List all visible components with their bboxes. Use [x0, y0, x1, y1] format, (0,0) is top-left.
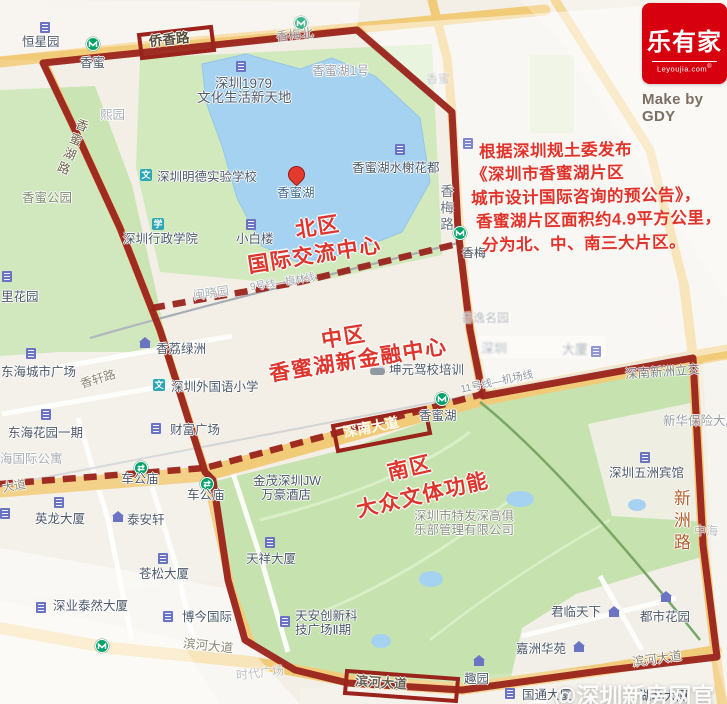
credit-text: Make by GDY [642, 91, 727, 125]
watermark: @深圳新房网官微 [527, 677, 727, 704]
registered-mark: ® [707, 64, 712, 70]
leyoujia-logo: 乐有家 Leyoujia.com® [642, 3, 727, 84]
annotation-layer: 北区国际交流中心中区香蜜湖新金融中心南区大众文体功能根据深圳规土委发布《深圳市香… [0, 0, 727, 704]
xiangmihu-district-map: 文学文⇄⇄ 恒星园香蜜侨香路香梅北深圳1979文化生活新天地香蜜湖1号熙园香蜜香… [0, 0, 727, 704]
annotation-line: 分为北、中、南三大片区。 [482, 228, 686, 256]
logo-url-text: Leyoujia.com [657, 65, 707, 74]
watermark-text: @深圳新房网官微 [554, 677, 727, 704]
logo-text: 乐有家 [642, 22, 727, 57]
logo-subtext: Leyoujia.com® [652, 61, 717, 74]
annotation-line: 《深圳市香蜜湖片区 [471, 159, 624, 186]
